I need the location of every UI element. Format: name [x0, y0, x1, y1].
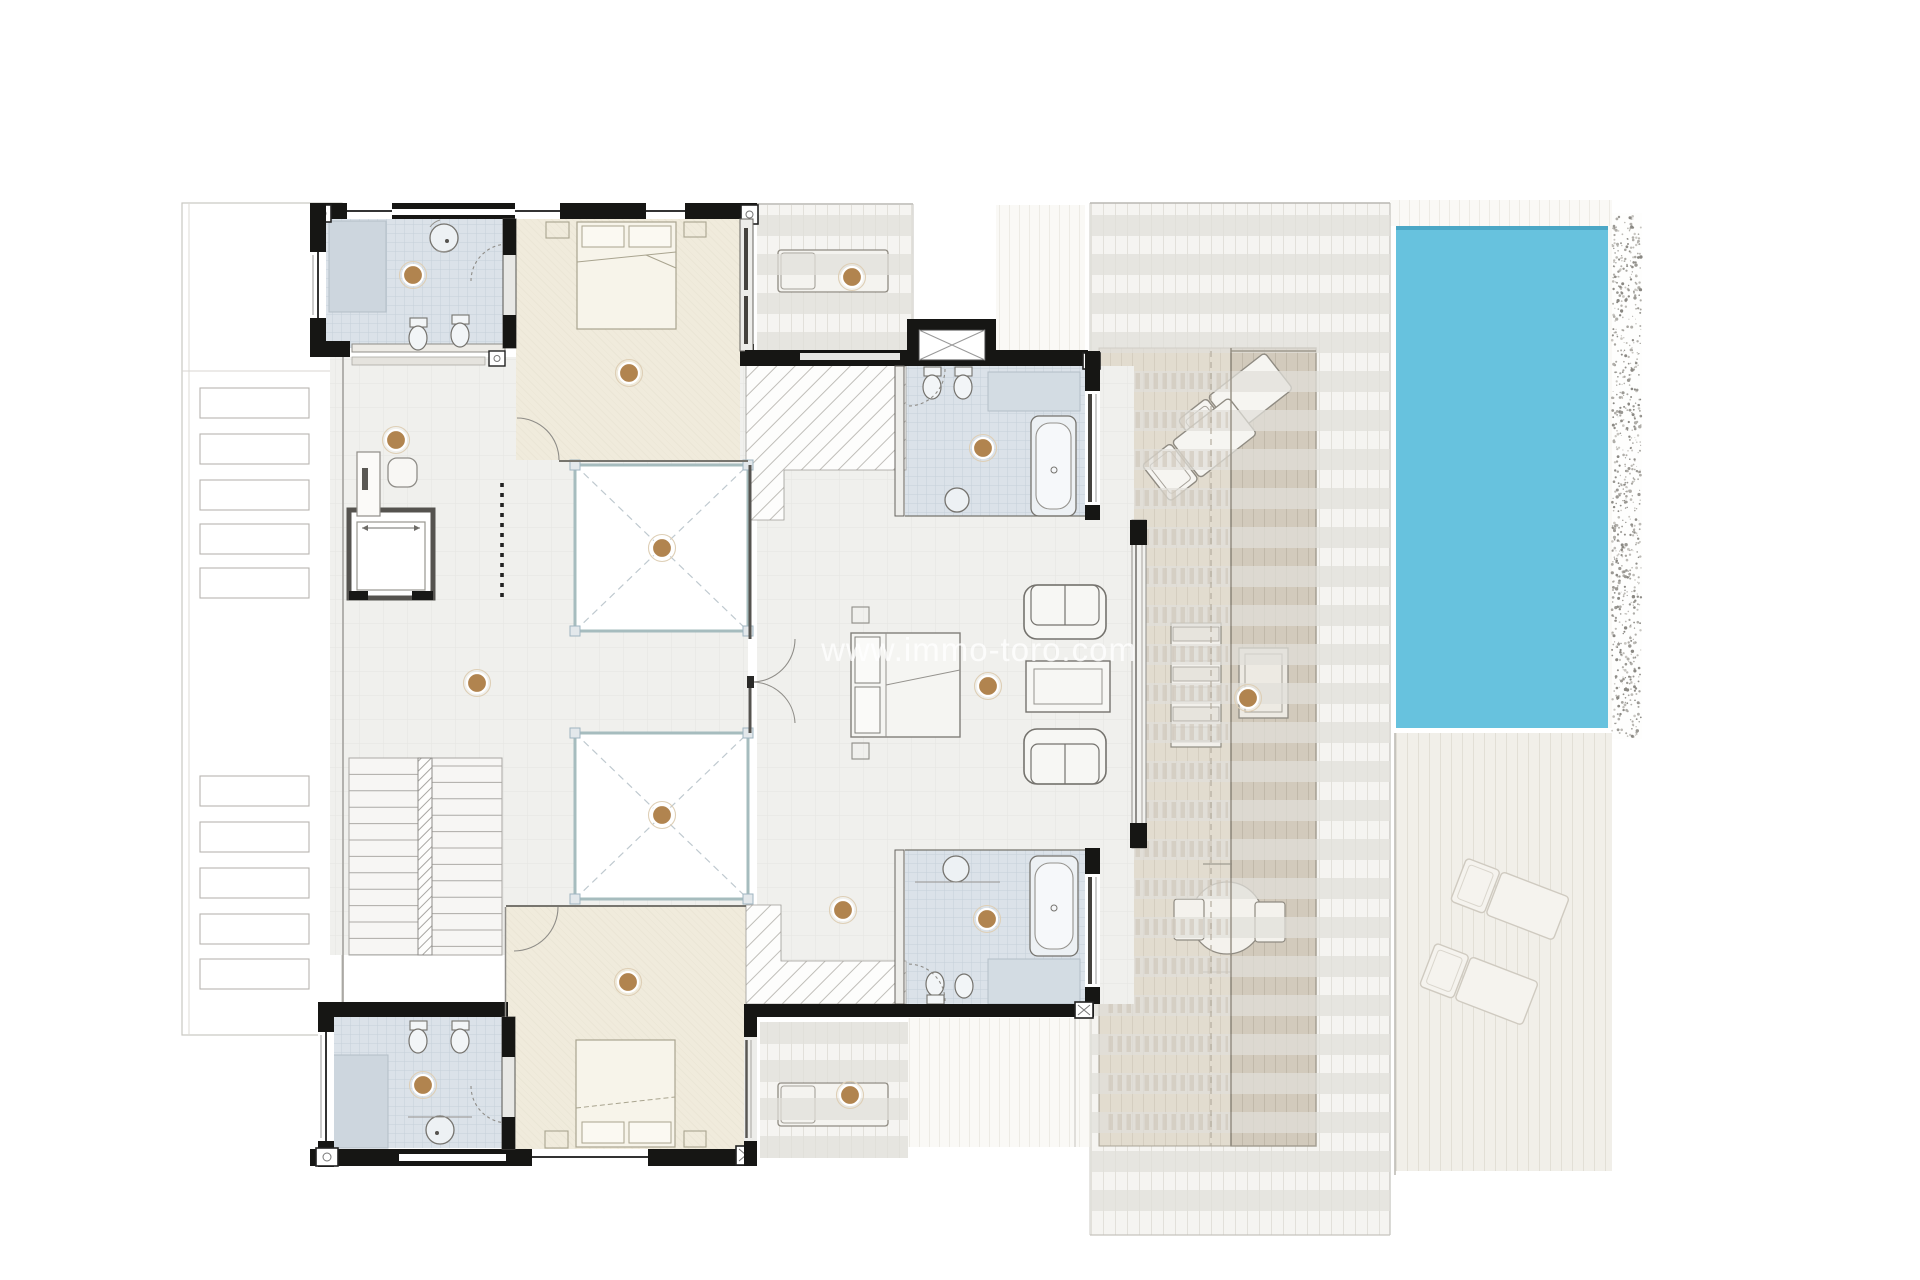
- svg-text:www.immo-toro.com: www.immo-toro.com: [820, 631, 1137, 668]
